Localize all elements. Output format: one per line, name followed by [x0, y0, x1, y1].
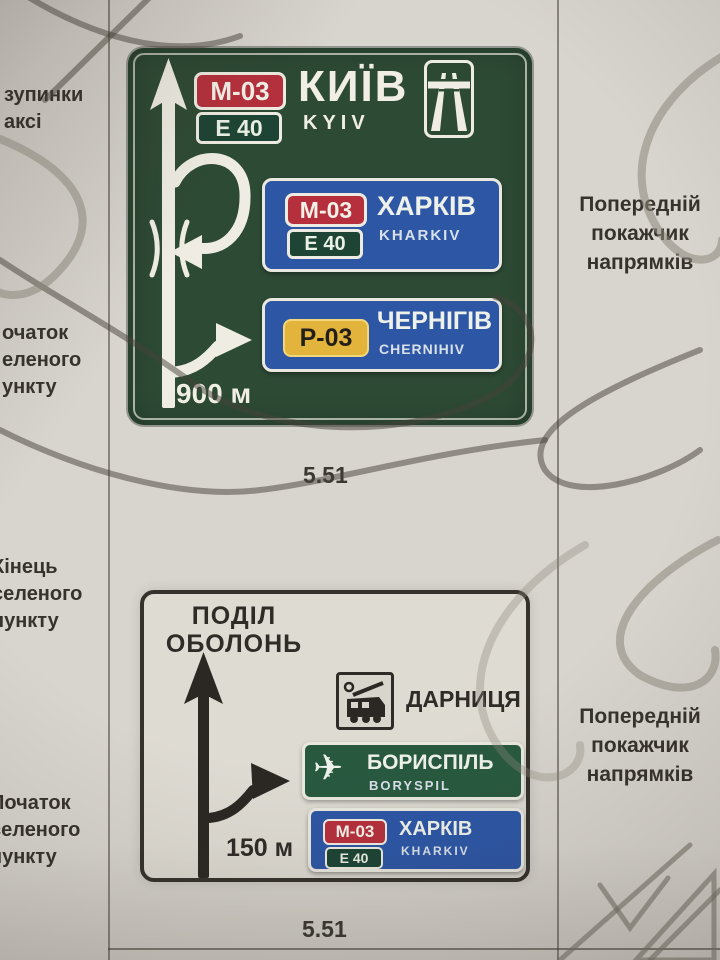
destination-chernihiv: ЧЕРНІГІВ: [377, 307, 492, 336]
destination-kharkiv-latin: KHARKIV: [379, 227, 461, 244]
route-number-badge: М-03: [194, 72, 286, 110]
train-icon: [336, 672, 394, 730]
left-caption-settlement-start-2: Початок селеного пункту: [0, 790, 80, 871]
destination-kyiv-latin: KYIV: [303, 112, 370, 135]
destination-kyiv: КИЇВ: [298, 62, 408, 112]
white-direction-sign: ПОДІЛ ОБОЛОНЬ ДАРНИЦЯ ✈ БОРИСПІЛЬ: [140, 590, 530, 882]
panel-kharkiv-small: М-03 Е 40 ХАРКІВ KHARKIV: [308, 808, 524, 872]
caption-line: селеного: [0, 581, 82, 608]
destination-boryspil-latin: BORYSPIL: [369, 778, 451, 793]
green-direction-sign: М-03 Е 40 КИЇВ KYIV М-03 Е 40 ХАРКІВ KHA…: [128, 48, 532, 425]
motorway-icon: [424, 60, 474, 138]
territorial-route-badge: Р-03: [283, 319, 369, 357]
destination-boryspil: БОРИСПІЛЬ: [367, 751, 493, 775]
destination-kharkiv-latin: KHARKIV: [401, 844, 470, 858]
euro-route-badge: Е 40: [325, 847, 383, 869]
distance-value: 900 м: [176, 378, 251, 410]
table-border-bottom: [108, 948, 720, 950]
table-border-left: [108, 0, 110, 960]
caption-line: аксі: [4, 109, 83, 136]
panel-kharkiv: М-03 Е 40 ХАРКІВ KHARKIV: [262, 178, 502, 272]
caption-line: ункту: [2, 374, 81, 401]
left-caption-settlement-end: Кінець селеного пункту: [0, 554, 82, 635]
left-caption-settlement-start-1: очаток еленого ункту: [2, 320, 81, 401]
caption-line: Попередній: [560, 190, 720, 219]
route-number-badge: М-03: [323, 819, 387, 845]
caption-line: пункту: [0, 608, 82, 635]
caption-line: селеного: [0, 817, 80, 844]
destination-kharkiv: ХАРКІВ: [399, 818, 472, 841]
panel-chernihiv: Р-03 ЧЕРНІГІВ CHERNIHIV: [262, 298, 502, 372]
caption-line: покажчик: [560, 731, 720, 760]
caption-line: еленого: [2, 347, 81, 374]
right-caption-advance-direction-1: Попередній покажчик напрямків: [560, 190, 720, 277]
destination-darnytsia: ДАРНИЦЯ: [406, 686, 521, 713]
sign-code-caption-bottom: 5.51: [302, 916, 347, 943]
sign-code-caption-top: 5.51: [303, 462, 348, 489]
caption-line: Початок: [0, 790, 80, 817]
caption-line: зупинки: [4, 82, 83, 109]
caption-line: Попередній: [560, 702, 720, 731]
distance-value: 150 м: [226, 834, 293, 863]
destination-chernihiv-latin: CHERNIHIV: [379, 341, 465, 357]
right-caption-advance-direction-2: Попередній покажчик напрямків: [560, 702, 720, 789]
euro-route-badge: Е 40: [287, 229, 363, 259]
destination-kharkiv: ХАРКІВ: [377, 191, 476, 222]
district-podil: ПОДІЛ: [144, 602, 324, 631]
caption-line: Кінець: [0, 554, 82, 581]
caption-line: очаток: [2, 320, 81, 347]
caption-line: пункту: [0, 844, 80, 871]
euro-route-badge: Е 40: [196, 112, 282, 144]
panel-boryspil: ✈ БОРИСПІЛЬ BORYSPIL: [302, 742, 524, 800]
table-border-right: [557, 0, 559, 960]
caption-line: напрямків: [560, 248, 720, 277]
airplane-icon: ✈: [313, 747, 343, 789]
left-caption-taxi-stop: зупинки аксі: [4, 82, 83, 136]
caption-line: покажчик: [560, 219, 720, 248]
route-number-badge: М-03: [285, 193, 367, 227]
caption-line: напрямків: [560, 760, 720, 789]
scanned-page: { "page": { "left_margin": { "block1": {…: [0, 0, 720, 960]
